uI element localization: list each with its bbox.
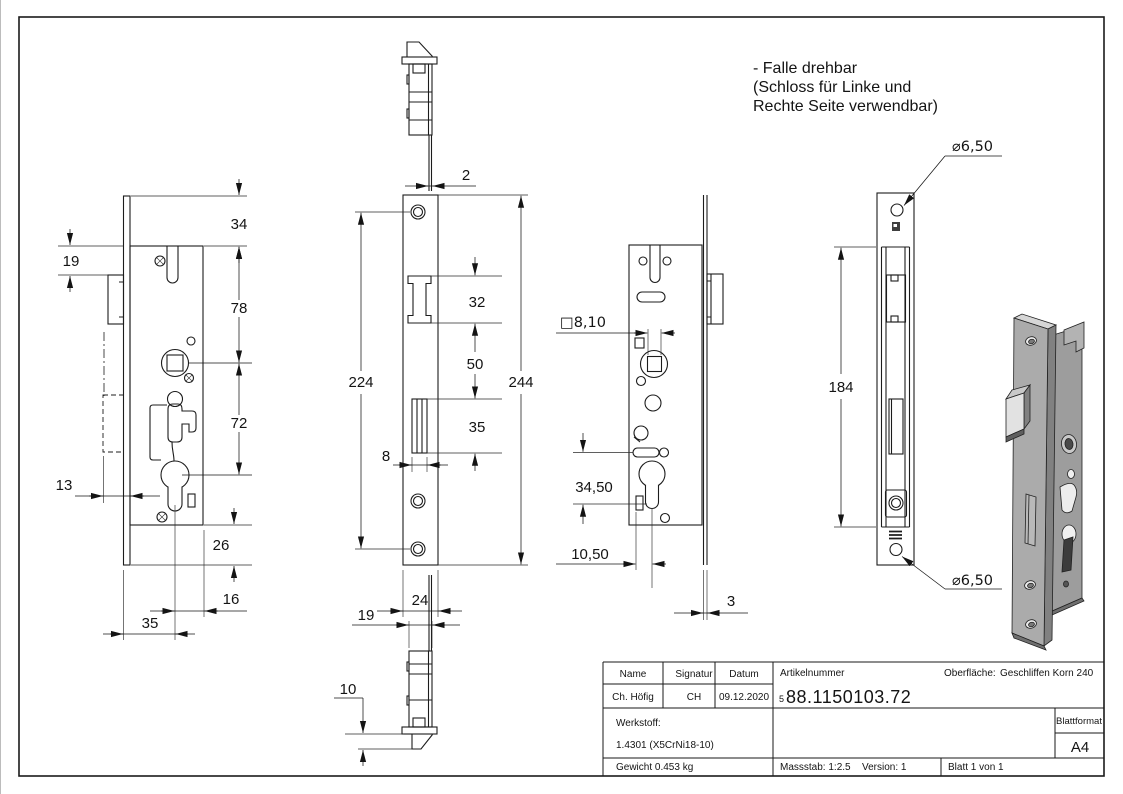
dim-10: 10 — [340, 681, 357, 698]
dim-72: 72 — [231, 415, 248, 432]
dim-10-50: 10,50 — [571, 546, 609, 563]
note-line-1: - Falle drehbar — [753, 60, 858, 77]
tb-oberflaeche-value: Geschliffen Korn 240 — [1000, 668, 1094, 679]
tb-blattformat-label: Blattformat — [1056, 716, 1102, 727]
tb-blatt-value: Blatt 1 von 1 — [948, 762, 1004, 773]
dim-19: 19 — [63, 253, 80, 270]
front-view: 2 224 244 32 50 35 8 — [334, 42, 534, 766]
dim-34-50: 34,50 — [575, 479, 613, 496]
dim-224: 224 — [348, 374, 373, 391]
faceplate-view: 184 ⌀6,50 ⌀6,50 — [828, 139, 1002, 589]
dim-8: 8 — [382, 448, 390, 465]
dim-dia-650-bottom: ⌀6,50 — [952, 573, 993, 589]
dim-32: 32 — [469, 294, 486, 311]
tb-massstab-value: Massstab: 1:2.5 — [780, 762, 851, 773]
tb-artikelnummer-label: Artikelnummer — [780, 668, 845, 679]
tb-oberflaeche-label: Oberfläche: — [944, 668, 996, 679]
tb-name-value: Ch. Höfig — [612, 692, 654, 703]
tb-werkstoff-value: 1.4301 (X5CrNi18-10) — [616, 740, 714, 751]
dim-16: 16 — [223, 591, 240, 608]
dim-24: 24 — [412, 592, 429, 609]
dim-35-side: 35 — [142, 615, 159, 632]
dim-184: 184 — [828, 379, 853, 396]
tb-artikelnummer-value: 88.1150103.72 — [786, 687, 911, 707]
dim-3: 3 — [727, 593, 735, 610]
tb-blattformat-value: A4 — [1071, 739, 1089, 756]
back-view: □8,10 34,50 10,50 3 — [556, 195, 748, 620]
dim-dia-650-top: ⌀6,50 — [952, 139, 993, 155]
note-line-2: (Schloss für Linke und — [753, 79, 911, 96]
tb-gewicht-value: Gewicht 0.453 kg — [616, 762, 693, 773]
drawing-sheet: - Falle drehbar (Schloss für Linke und R… — [0, 0, 1123, 794]
dim-34: 34 — [231, 216, 248, 233]
dim-19-front: 19 — [358, 607, 375, 624]
technical-drawing-canvas: - Falle drehbar (Schloss für Linke und R… — [0, 0, 1123, 794]
title-block: Name Signatur Datum Ch. Höfig CH 09.12.2… — [603, 662, 1104, 776]
tb-version-value: Version: 1 — [862, 762, 907, 773]
annotation-note: - Falle drehbar (Schloss für Linke und R… — [753, 60, 938, 115]
side-view: 34 19 78 72 13 26 16 35 — [56, 179, 252, 640]
tb-signatur-label: Signatur — [675, 669, 713, 680]
dim-2: 2 — [462, 167, 470, 184]
tb-datum-value: 09.12.2020 — [719, 692, 769, 703]
tb-signatur-value: CH — [687, 692, 701, 703]
dim-26: 26 — [213, 537, 230, 554]
tb-name-label: Name — [620, 669, 647, 680]
dim-78: 78 — [231, 300, 248, 317]
dim-square-8-10: □8,10 — [560, 315, 606, 331]
tb-werkstoff-label: Werkstoff: — [616, 718, 661, 729]
dim-35-front: 35 — [469, 419, 486, 436]
dim-13: 13 — [56, 477, 73, 494]
dim-244: 244 — [508, 374, 533, 391]
tb-datum-label: Datum — [729, 669, 758, 680]
tb-artikelnummer-prefix: 5 — [779, 694, 784, 704]
isometric-view — [1006, 314, 1084, 650]
dim-50: 50 — [467, 356, 484, 373]
note-line-3: Rechte Seite verwendbar) — [753, 98, 938, 115]
